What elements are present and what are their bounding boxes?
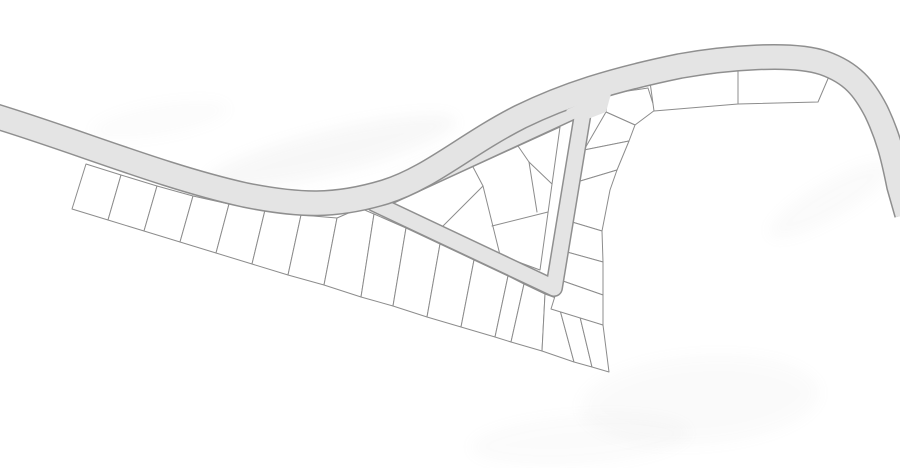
plot-plan-page [0, 0, 900, 468]
site-plan-map [0, 0, 900, 468]
